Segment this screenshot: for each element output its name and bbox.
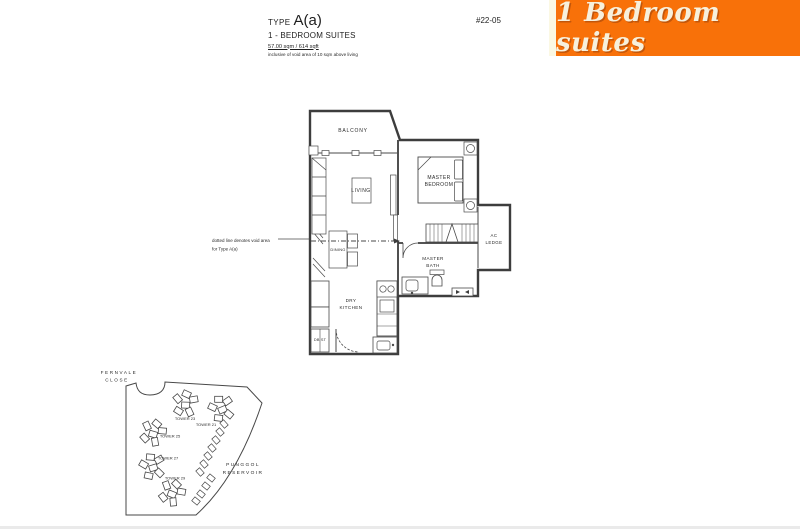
master-bath-label: MASTER — [422, 256, 444, 261]
floorplan-page: TYPEA(a) 1 - BEDROOM SUITES 57.00 sqm / … — [0, 0, 800, 529]
ac-ledge-label: LEDGE — [486, 240, 503, 245]
site-map: FERNVALE CLOSE PUNGGOL RESERVOIR TOWER 2… — [101, 370, 264, 515]
sofa — [312, 158, 326, 234]
dry-kitchen-label: DRY — [346, 298, 357, 303]
road-label: FERNVALE — [101, 370, 138, 375]
tv-console — [391, 175, 397, 215]
living-label: LIVING — [351, 188, 370, 194]
strip-units — [192, 420, 228, 505]
db-st-label: DB ST — [314, 338, 327, 342]
balcony-door-ticks — [309, 146, 381, 156]
ac-ledge-label: AC — [491, 233, 498, 238]
sink — [377, 341, 390, 350]
tower-label: TOWER 23 — [175, 416, 196, 421]
tower-label: TOWER 29 — [165, 476, 186, 481]
burner-icon — [380, 286, 386, 292]
master-bedroom-label: BEDROOM — [425, 182, 454, 188]
oven — [380, 300, 394, 312]
tall-unit — [311, 307, 329, 327]
void-annotation: dotted line denotes void area — [212, 238, 270, 243]
dry-kitchen-label: KITCHEN — [340, 305, 363, 310]
master-bedroom-label: MASTER — [427, 175, 450, 181]
floorplan-drawing: BALCONY LIVING MASTER BEDROOM DINING MAS… — [0, 0, 800, 529]
tower-cluster — [205, 392, 237, 424]
wardrobe — [426, 224, 478, 242]
pillow — [455, 160, 463, 179]
tower-label: TOWER 27 — [158, 456, 179, 461]
bedside-lamp-icon — [467, 202, 475, 210]
pillow — [455, 182, 463, 201]
tap-icon — [392, 344, 394, 346]
dining-label: DINING — [330, 247, 345, 252]
tower-cluster — [170, 388, 200, 418]
bath-door-arc — [403, 243, 418, 258]
tower-label: TOWER 21 — [196, 422, 217, 427]
toilet-cistern — [430, 270, 444, 275]
burner-icon — [388, 286, 394, 292]
master-bath-fixtures — [402, 243, 473, 296]
basin — [406, 280, 418, 291]
entry-door — [336, 329, 359, 352]
tower-cluster — [136, 415, 170, 450]
unit-floorplan: BALCONY LIVING MASTER BEDROOM DINING MAS… — [212, 111, 510, 354]
toilet — [432, 275, 442, 286]
basin-drain-icon — [411, 292, 413, 294]
kitchen-fixtures — [311, 281, 397, 353]
tall-unit — [311, 281, 329, 307]
water-label: RESERVOIR — [223, 470, 264, 476]
tower-label: TOWER 25 — [160, 434, 181, 439]
void-annotation: for Type A(a) — [212, 247, 238, 252]
bedroom-door-leaf — [394, 215, 398, 241]
balcony-label: BALCONY — [338, 128, 368, 134]
road-label: CLOSE — [105, 378, 129, 383]
bath-vent-box — [452, 288, 473, 296]
bedside-lamp-icon — [467, 145, 475, 153]
water-label: PUNGGOL — [226, 462, 260, 468]
master-bath-label: BATH — [426, 263, 440, 268]
